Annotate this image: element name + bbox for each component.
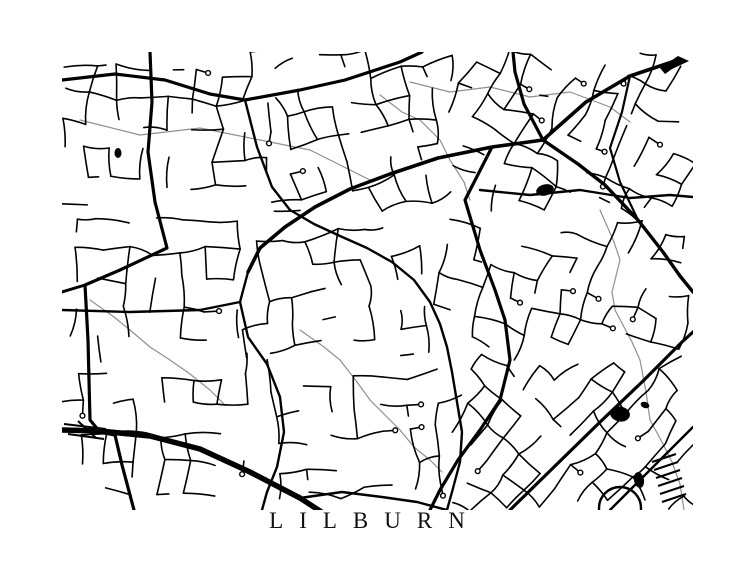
map-print: LILBURN: [0, 0, 750, 563]
map-frame: [62, 52, 693, 510]
street-map-svg: [62, 52, 693, 510]
map-title: LILBURN: [0, 508, 750, 534]
